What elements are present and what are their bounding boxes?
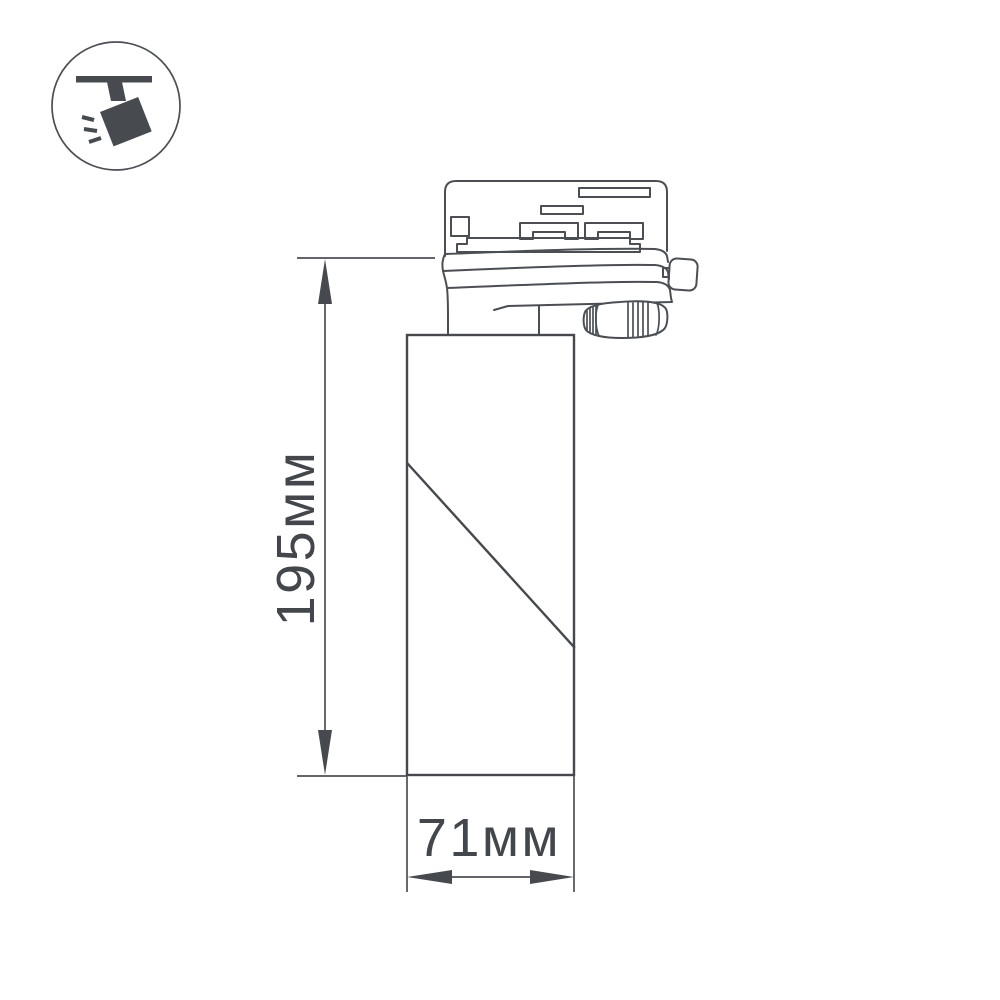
body-seam-diagonal — [408, 464, 574, 647]
arrowhead-left — [407, 870, 452, 884]
collar-band-bottom — [447, 282, 671, 298]
contact-slot-small — [541, 206, 583, 214]
arrowhead-down — [318, 730, 332, 775]
lamp-body — [407, 335, 574, 775]
light-ray — [84, 129, 97, 131]
arrowhead-right — [530, 870, 574, 884]
track-adapter — [442, 181, 698, 338]
contact-square — [451, 217, 469, 236]
arrowhead-up — [318, 259, 332, 304]
contact-slot-long — [579, 188, 650, 197]
collar-band-middle — [443, 265, 669, 279]
collar-left-profile — [442, 254, 448, 334]
width-dimension: 71мм — [407, 776, 574, 892]
collar-band-top — [445, 249, 668, 262]
adjustment-knob — [584, 301, 668, 338]
contact-bridge-left — [520, 223, 578, 239]
drawing-canvas: 195мм 71мм — [0, 0, 1000, 1000]
mount-type-badge — [52, 42, 180, 170]
contact-bridge-right — [585, 223, 643, 239]
height-dimension-label: 195мм — [266, 450, 326, 627]
ceiling-track-bar — [76, 76, 152, 83]
width-dimension-label: 71мм — [417, 808, 561, 868]
locking-lever — [668, 258, 698, 291]
dimension-drawing: 195мм 71мм — [0, 0, 1000, 1000]
lever-tab — [668, 258, 698, 291]
